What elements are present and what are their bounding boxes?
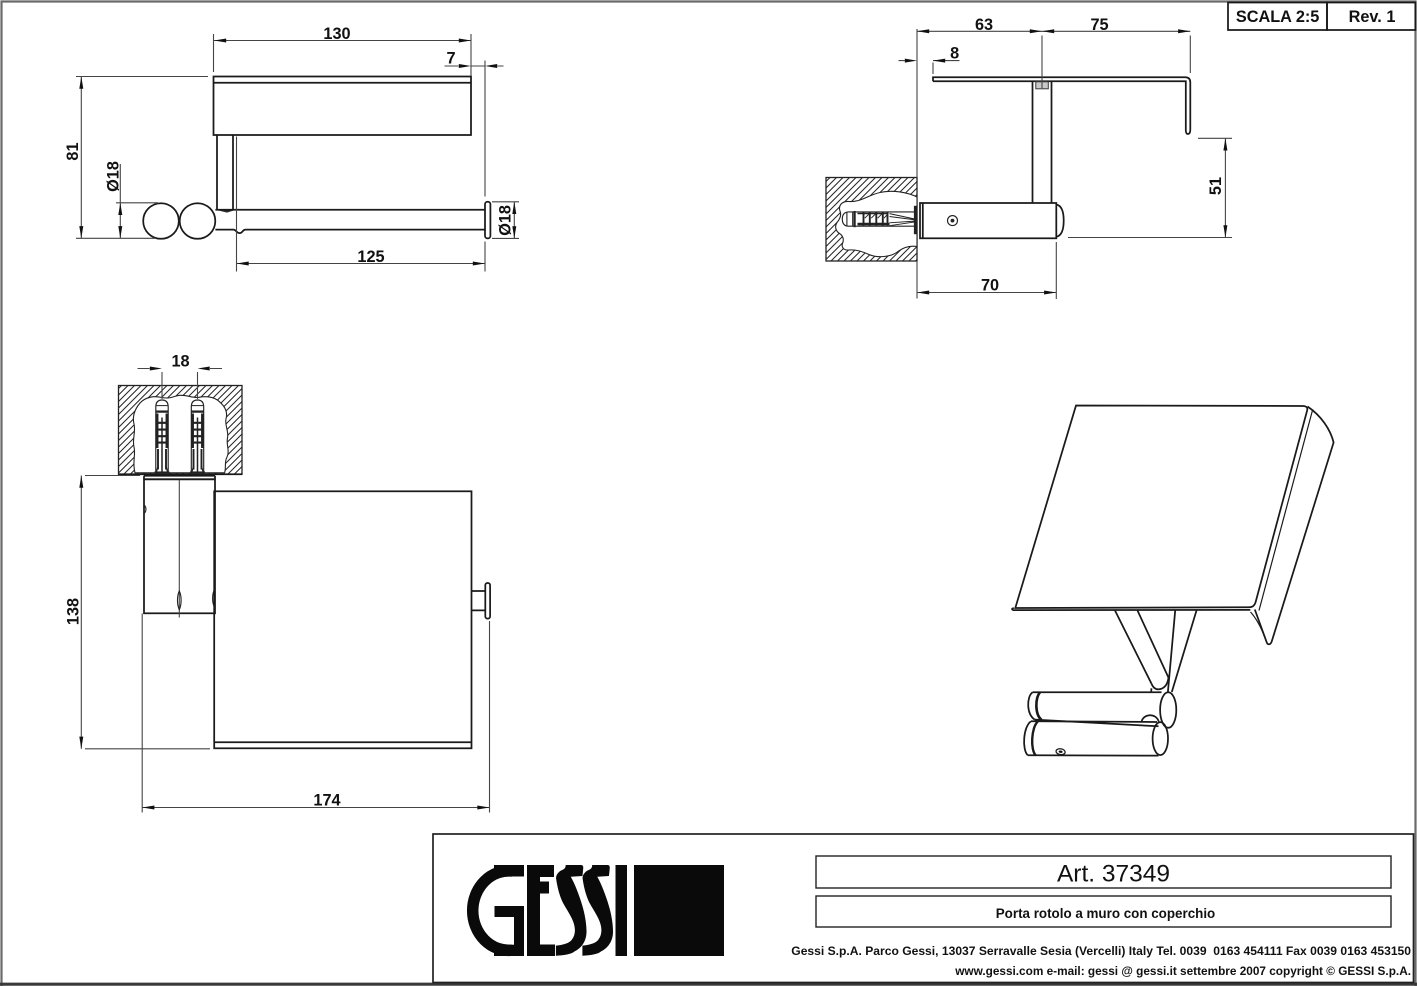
- svg-text:SCALA 2:5: SCALA 2:5: [1236, 8, 1320, 26]
- svg-text:Art. 37349: Art. 37349: [1057, 861, 1170, 888]
- svg-text:8: 8: [950, 45, 959, 63]
- svg-text:130: 130: [323, 25, 350, 43]
- svg-text:174: 174: [313, 791, 340, 809]
- svg-text:63: 63: [975, 16, 993, 34]
- svg-text:18: 18: [171, 352, 189, 370]
- svg-text:75: 75: [1090, 16, 1108, 34]
- svg-text:125: 125: [357, 248, 384, 266]
- svg-text:70: 70: [981, 277, 999, 295]
- svg-text:www.gessi.com e-mail: gessi @: www.gessi.com e-mail: gessi @ gessi.it s…: [954, 964, 1411, 978]
- svg-text:Rev. 1: Rev. 1: [1349, 8, 1396, 26]
- svg-text:Gessi S.p.A. Parco Gessi, 1303: Gessi S.p.A. Parco Gessi, 13037 Serraval…: [791, 944, 1411, 958]
- svg-text:Ø18: Ø18: [105, 161, 123, 192]
- svg-text:Porta rotolo a muro con coperc: Porta rotolo a muro con coperchio: [996, 906, 1215, 921]
- svg-text:138: 138: [64, 598, 82, 625]
- svg-text:81: 81: [64, 142, 82, 160]
- svg-text:7: 7: [446, 50, 455, 68]
- svg-text:Ø18: Ø18: [497, 205, 515, 236]
- svg-text:51: 51: [1207, 177, 1225, 195]
